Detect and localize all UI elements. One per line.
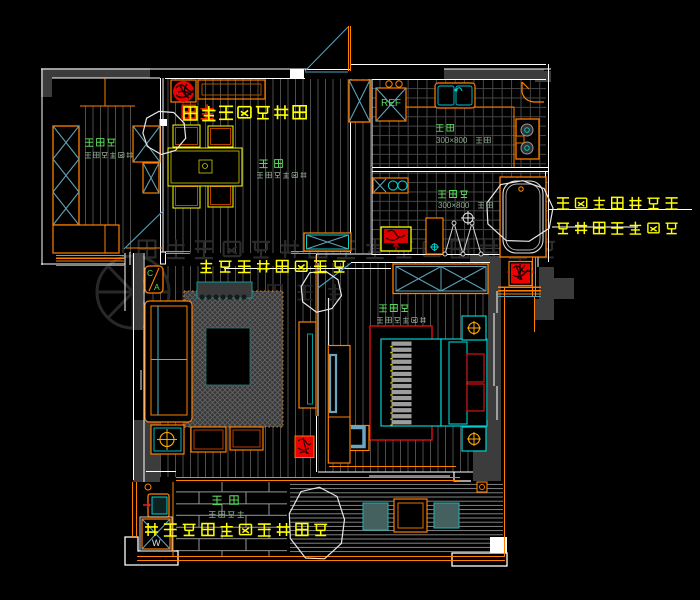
svg-text:300×800: 300×800: [438, 201, 470, 210]
svg-text:C: C: [147, 268, 153, 278]
svg-text:W: W: [152, 538, 161, 548]
svg-text:REF: REF: [381, 98, 401, 109]
svg-text:300×800: 300×800: [436, 136, 468, 145]
svg-text:A: A: [154, 282, 160, 292]
